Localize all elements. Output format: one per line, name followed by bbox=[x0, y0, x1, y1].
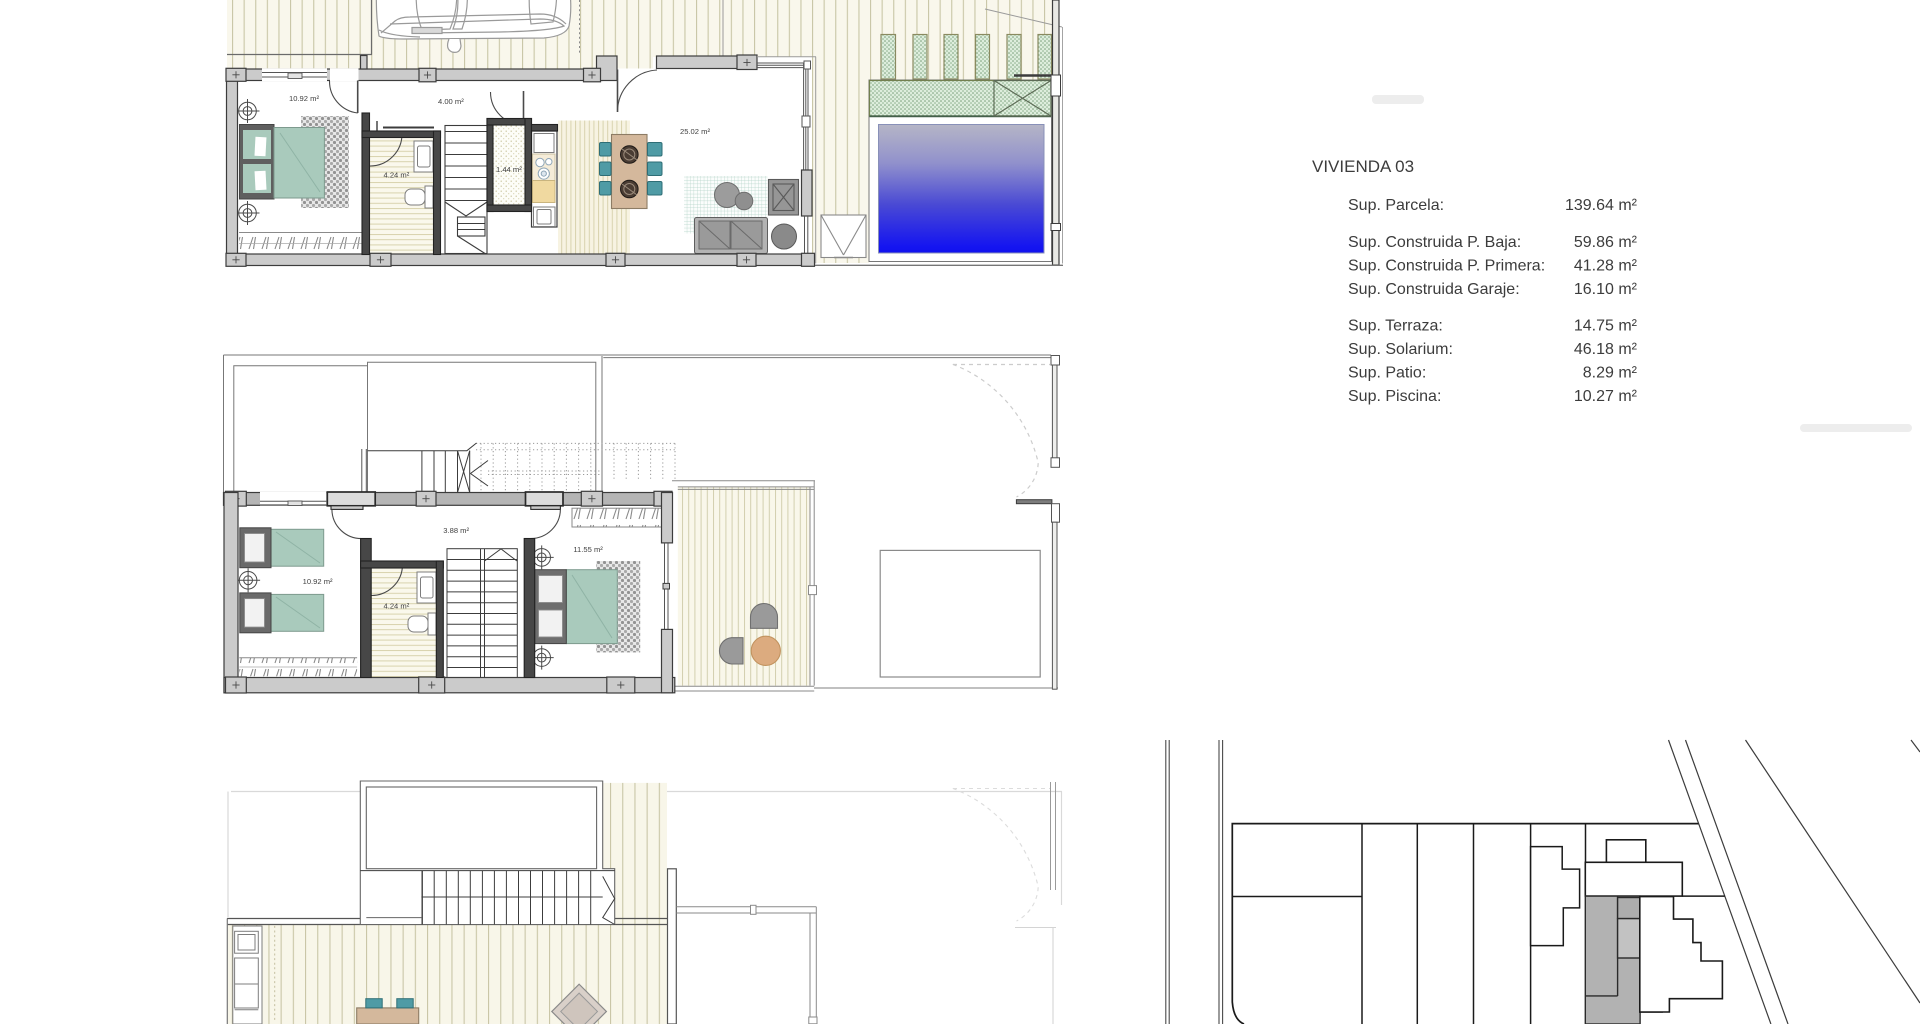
svg-text:1.44 m²: 1.44 m² bbox=[496, 165, 522, 174]
svg-text:59.86 m²: 59.86 m² bbox=[1574, 234, 1638, 251]
svg-text:Sup. Piscina:: Sup. Piscina: bbox=[1348, 388, 1441, 405]
svg-text:139.64 m²: 139.64 m² bbox=[1565, 197, 1638, 214]
svg-text:10.27 m²: 10.27 m² bbox=[1574, 388, 1638, 405]
svg-text:Sup. Terraza:: Sup. Terraza: bbox=[1348, 318, 1443, 335]
svg-text:16.10 m²: 16.10 m² bbox=[1574, 281, 1638, 298]
svg-text:Sup. Construida P. Baja:: Sup. Construida P. Baja: bbox=[1348, 234, 1521, 251]
svg-text:10.92 m²: 10.92 m² bbox=[289, 94, 319, 103]
svg-text:14.75 m²: 14.75 m² bbox=[1574, 318, 1638, 335]
svg-text:4.24 m²: 4.24 m² bbox=[384, 602, 410, 611]
svg-text:Sup. Solarium:: Sup. Solarium: bbox=[1348, 341, 1453, 358]
svg-text:Sup. Construida Garaje:: Sup. Construida Garaje: bbox=[1348, 281, 1520, 298]
svg-text:11.55 m²: 11.55 m² bbox=[573, 545, 603, 554]
svg-text:8.29 m²: 8.29 m² bbox=[1583, 365, 1638, 382]
svg-text:10.92 m²: 10.92 m² bbox=[303, 577, 333, 586]
svg-text:46.18 m²: 46.18 m² bbox=[1574, 341, 1638, 358]
svg-text:Sup. Patio:: Sup. Patio: bbox=[1348, 365, 1426, 382]
svg-text:41.28 m²: 41.28 m² bbox=[1574, 258, 1638, 275]
svg-text:4.00 m²: 4.00 m² bbox=[438, 97, 464, 106]
svg-text:Sup. Parcela:: Sup. Parcela: bbox=[1348, 197, 1444, 214]
svg-text:4.24 m²: 4.24 m² bbox=[384, 171, 410, 180]
svg-text:25.02 m²: 25.02 m² bbox=[680, 127, 710, 136]
svg-text:3.88 m²: 3.88 m² bbox=[443, 526, 469, 535]
svg-text:Sup. Construida P. Primera:: Sup. Construida P. Primera: bbox=[1348, 258, 1545, 275]
svg-text:VIVIENDA 03: VIVIENDA 03 bbox=[1312, 157, 1414, 176]
